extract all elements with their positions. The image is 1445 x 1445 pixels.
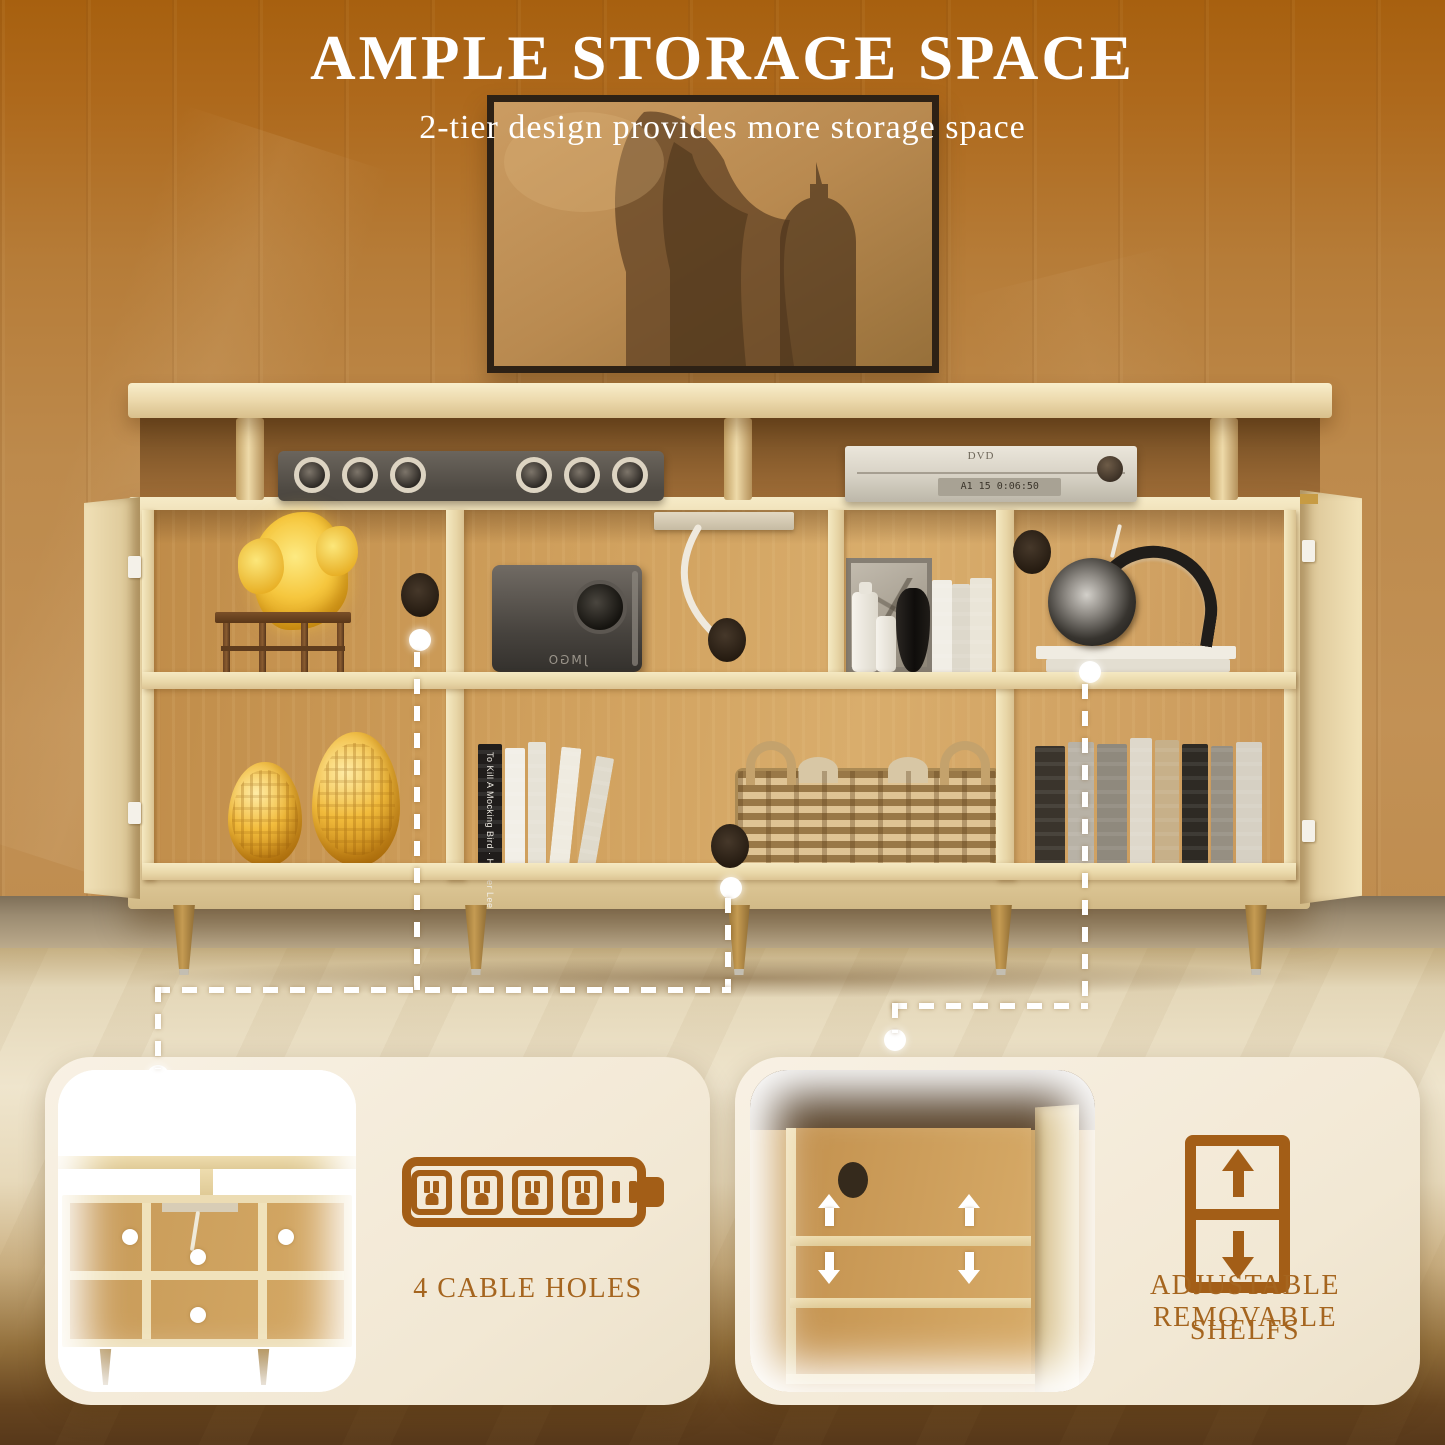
cabinet-divider bbox=[996, 510, 1014, 880]
callout-dot-shelf bbox=[1079, 661, 1101, 683]
cable-holes-label: 4 CABLE HOLES bbox=[360, 1273, 696, 1305]
door-hinge bbox=[1302, 540, 1315, 562]
projector: JMGO bbox=[492, 565, 642, 672]
white-bottle bbox=[876, 616, 896, 672]
callout-dashed-line bbox=[892, 1003, 898, 1033]
callout-dashed-line bbox=[414, 652, 420, 990]
adj-down-arrow-stem bbox=[1233, 1231, 1244, 1257]
middle-shelf bbox=[142, 672, 1296, 689]
power-strip-battery-icon bbox=[402, 1157, 664, 1227]
adj-up-arrow-head bbox=[1222, 1149, 1254, 1171]
book-spine bbox=[1097, 744, 1127, 864]
leg-foot bbox=[733, 969, 746, 975]
mini-stool bbox=[215, 612, 351, 674]
feature-card-cable-holes: 4 CABLE HOLES bbox=[45, 1057, 710, 1405]
book-title: To Kill A Mocking Bird · Harper Lee bbox=[485, 752, 495, 909]
speaker-cone bbox=[294, 457, 330, 493]
book-row: To Kill A Mocking Bird · Harper Lee bbox=[478, 742, 598, 866]
book-spine bbox=[1035, 746, 1065, 864]
tv-stand-post bbox=[724, 418, 752, 500]
outlet-glyph bbox=[461, 1170, 502, 1215]
egg-texture bbox=[232, 770, 297, 857]
dvd-logo: DVD bbox=[968, 450, 995, 462]
book-spine: To Kill A Mocking Bird · Harper Lee bbox=[478, 744, 502, 866]
adjustable-shelves-photo bbox=[750, 1070, 1095, 1392]
book-spine bbox=[1182, 744, 1208, 864]
cabinet-left-wall bbox=[142, 510, 154, 880]
photo-fade bbox=[750, 1070, 1095, 1392]
battery-bar bbox=[629, 1181, 637, 1203]
outlet-glyph bbox=[562, 1170, 603, 1215]
adj-up-arrow-stem bbox=[1233, 1171, 1244, 1197]
dvd-seam bbox=[857, 472, 1126, 474]
outlet-slot bbox=[433, 1181, 439, 1193]
cabinet-divider bbox=[446, 510, 464, 880]
cabinet-right-wall bbox=[1284, 510, 1296, 880]
outlet-glyph bbox=[411, 1170, 452, 1215]
cable-hole bbox=[708, 618, 746, 662]
outlet-glyph bbox=[512, 1170, 553, 1215]
door-catch-gold bbox=[1300, 494, 1318, 504]
stool-rail bbox=[221, 646, 345, 651]
speaker-cone bbox=[516, 457, 552, 493]
book-spine-leaning bbox=[549, 747, 581, 868]
callout-dashed-line bbox=[155, 987, 161, 1069]
egg-texture bbox=[317, 743, 394, 856]
callout-dashed-line bbox=[892, 1003, 1088, 1009]
photo-fade bbox=[58, 1070, 356, 1392]
speaker-cone bbox=[342, 457, 378, 493]
book-spine bbox=[1211, 746, 1233, 864]
projector-edge bbox=[632, 571, 638, 666]
speaker-cone bbox=[612, 457, 648, 493]
callout-dot-cable-hole bbox=[409, 629, 431, 651]
cabinet-divider-upper bbox=[828, 510, 844, 672]
door-hinge bbox=[128, 802, 141, 824]
outlet-ground bbox=[576, 1193, 589, 1205]
outlet-ground bbox=[476, 1193, 489, 1205]
speaker-cone bbox=[564, 457, 600, 493]
callout-dashed-line bbox=[155, 987, 731, 993]
outlet-slot bbox=[534, 1181, 540, 1193]
golden-egg-decor bbox=[228, 762, 302, 866]
callout-dashed-line bbox=[725, 898, 731, 990]
speaker-cone bbox=[390, 457, 426, 493]
outlet-slot bbox=[424, 1181, 430, 1193]
soundbar bbox=[278, 451, 664, 501]
basket-handle bbox=[746, 741, 796, 785]
headphone-earcup bbox=[1048, 558, 1136, 646]
power-strip-body bbox=[402, 1157, 646, 1227]
leg-foot bbox=[995, 969, 1008, 975]
leg-foot bbox=[1250, 969, 1263, 975]
cable-hole bbox=[711, 824, 749, 868]
leg-foot bbox=[470, 969, 483, 975]
door-hinge bbox=[1302, 820, 1315, 842]
projector-label: JMGO bbox=[492, 653, 642, 667]
page-subtitle: 2-tier design provides more storage spac… bbox=[0, 109, 1445, 147]
outlet-slot bbox=[474, 1181, 480, 1193]
cable-hole bbox=[401, 573, 439, 617]
book-spine bbox=[952, 584, 970, 672]
adjustable-shelves-label-line2: SHELFS bbox=[1080, 1315, 1410, 1347]
book-spine bbox=[1236, 742, 1262, 864]
dvd-knob bbox=[1097, 456, 1123, 482]
book-under-headphones bbox=[1046, 659, 1230, 672]
battery-bar bbox=[612, 1181, 620, 1203]
cable-holes-photo bbox=[58, 1070, 356, 1392]
headphones bbox=[1048, 546, 1228, 648]
outlet-slot bbox=[575, 1181, 581, 1193]
outlet-ground bbox=[526, 1193, 539, 1205]
book-row bbox=[1035, 738, 1287, 866]
book-spine bbox=[528, 742, 546, 866]
page-title: AMPLE STORAGE SPACE bbox=[0, 22, 1445, 95]
outlet-slot bbox=[484, 1181, 490, 1193]
basket-handle bbox=[940, 741, 990, 785]
book-spine bbox=[932, 580, 952, 672]
book-spine bbox=[1155, 740, 1179, 864]
tv-stand-top-board bbox=[128, 383, 1332, 418]
stool-top bbox=[215, 612, 351, 623]
wicker-basket bbox=[735, 768, 1001, 866]
book-spine bbox=[505, 748, 525, 866]
outlet-slot bbox=[525, 1181, 531, 1193]
cable-hole bbox=[1013, 530, 1051, 574]
door-hinge bbox=[128, 556, 141, 578]
callout-dot-cable-hole bbox=[720, 877, 742, 899]
headline-block: AMPLE STORAGE SPACE 2-tier design provid… bbox=[0, 22, 1445, 147]
outlet-slot bbox=[584, 1181, 590, 1193]
callout-dashed-line bbox=[1082, 684, 1088, 1006]
adj-icon-shelf-bar bbox=[1191, 1209, 1284, 1220]
book-spine bbox=[1130, 738, 1152, 864]
feature-card-adjustable-shelves: ADJUSTABLE REMOVABLE SHELFS bbox=[735, 1057, 1420, 1405]
book-spine bbox=[1068, 742, 1094, 864]
dvd-display: A1 15 0:06:50 bbox=[938, 478, 1061, 496]
bottle-cap bbox=[859, 582, 872, 594]
tv-stand-post bbox=[1210, 418, 1238, 500]
book-spine bbox=[970, 578, 992, 672]
white-bottle bbox=[852, 592, 878, 672]
projector-lens bbox=[573, 580, 627, 634]
outlet-ground bbox=[425, 1193, 438, 1205]
battery-nub bbox=[646, 1177, 664, 1207]
product-marketing-image: AMPLE STORAGE SPACE 2-tier design provid… bbox=[0, 0, 1445, 1445]
leg-foot bbox=[178, 969, 191, 975]
tv-stand-post bbox=[236, 418, 264, 500]
dvd-player: DVD A1 15 0:06:50 bbox=[845, 446, 1137, 502]
bottom-shelf bbox=[142, 863, 1296, 880]
